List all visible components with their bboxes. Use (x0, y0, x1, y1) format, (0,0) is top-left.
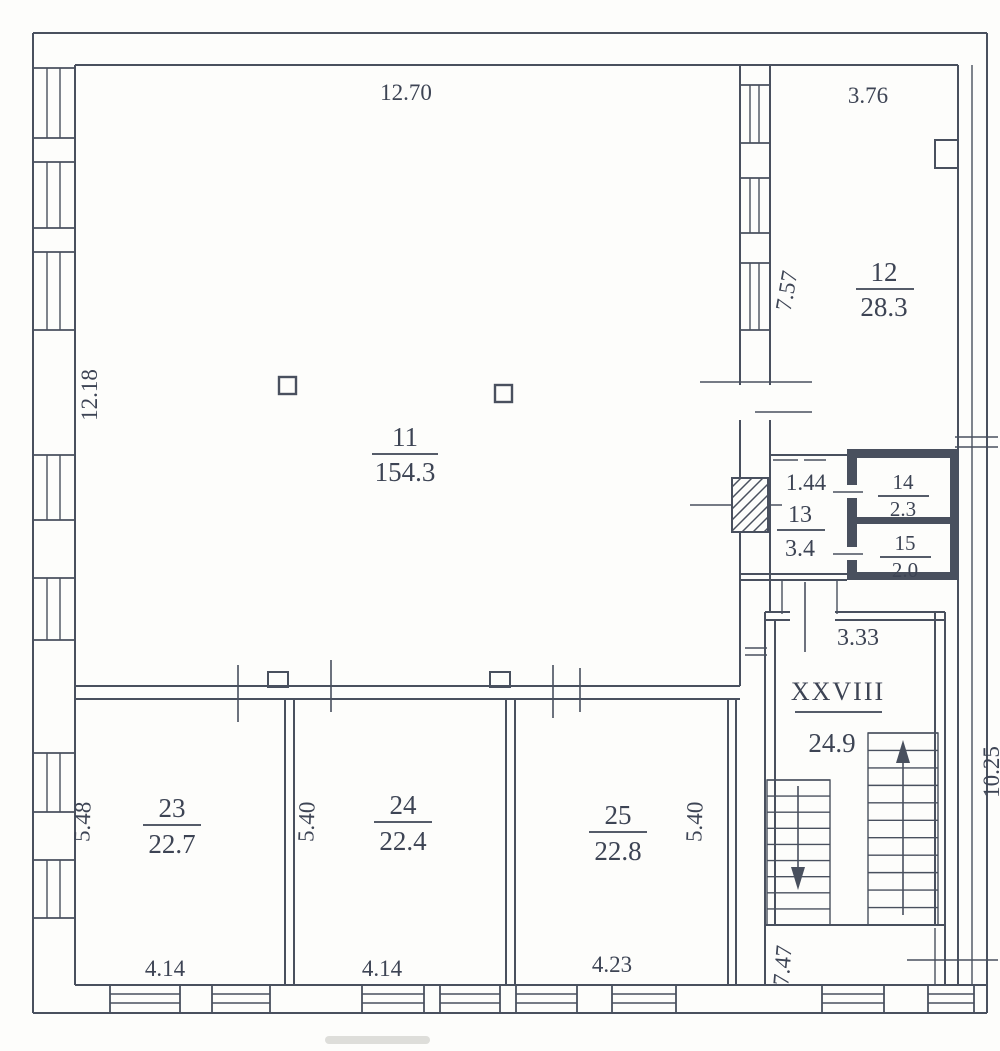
right-wall-niche (935, 140, 958, 168)
stairwell-label: XXVIII 24.9 (791, 677, 885, 758)
column-marker (495, 385, 512, 402)
pilaster-right (490, 672, 510, 687)
room-11-label: 11 154.3 (372, 422, 438, 487)
room-11-area: 154.3 (375, 457, 436, 487)
room-13-label: 13 3.4 (777, 502, 825, 562)
mid-wall-door-ticks (700, 382, 812, 412)
room-14-area: 2.3 (890, 497, 916, 521)
south-wall-door-ticks (238, 660, 580, 722)
dim-room25-height: 5.40 (681, 801, 707, 842)
mid-wall (690, 65, 812, 686)
stair-top-wall (765, 612, 945, 620)
vent-shaft-hatch (732, 478, 768, 532)
wc-top-wall (847, 449, 958, 458)
dim-stair-width: 3.33 (837, 625, 879, 651)
room-25-area: 22.8 (594, 836, 641, 866)
dim-room12-height: 7.57 (771, 269, 803, 313)
stair-down-arrow (791, 786, 805, 890)
dim-room24-height: 5.40 (293, 801, 319, 842)
stair-side-walls (765, 612, 945, 985)
dim-room24-width: 4.14 (362, 956, 403, 981)
dim-top-right-width: 3.76 (848, 83, 888, 108)
dim-stair-lower-height: 7.47 (768, 944, 796, 986)
dim-room23-width: 4.14 (145, 956, 186, 981)
stairwell-area: 24.9 (808, 728, 855, 758)
stairwell-number: XXVIII (791, 677, 885, 706)
room-23-area: 22.7 (148, 829, 195, 859)
room-24-label: 24 22.4 (374, 790, 432, 856)
dim-room13-width: 1.44 (786, 470, 827, 495)
service-rooms-walls (740, 449, 958, 652)
wall-24-25 (506, 699, 515, 985)
pilaster-left (268, 672, 288, 687)
corridor-ticks (745, 648, 767, 655)
dim-right-edge-partial: 10.25 (979, 746, 1000, 798)
room-23-number: 23 (159, 793, 186, 823)
dim-room23-height: 5.48 (69, 801, 95, 842)
room-15-area: 2.0 (892, 558, 918, 582)
mid-wall-lines (740, 65, 770, 686)
room-12-label: 12 28.3 (856, 257, 914, 322)
room-23-label: 23 22.7 (143, 793, 201, 859)
columns (279, 377, 512, 402)
scan-artifact (325, 1036, 430, 1044)
stair-up-arrow (896, 740, 910, 915)
column-marker (279, 377, 296, 394)
windows (33, 68, 974, 1013)
floor-plan-page: 12.70 3.76 12.18 7.57 1.44 3.33 5.48 5.4… (0, 0, 1000, 1051)
room-14-number: 14 (893, 470, 915, 494)
dim-left-height: 12.18 (77, 369, 102, 421)
room-12-area: 28.3 (860, 292, 907, 322)
room-13-number: 13 (788, 502, 812, 528)
room-11-number: 11 (392, 422, 418, 452)
outer-wall-edge (33, 33, 987, 1013)
room-13-area: 3.4 (785, 536, 815, 562)
stairwell-walls (765, 612, 998, 985)
room-25-label: 25 22.8 (589, 800, 647, 866)
stair-treads (767, 733, 938, 925)
room-24-number: 24 (390, 790, 418, 820)
dim-top-width: 12.70 (380, 80, 432, 105)
room-25-number: 25 (605, 800, 632, 830)
room-24-area: 22.4 (379, 826, 427, 856)
room-15-number: 15 (895, 531, 916, 555)
room25-right-wall (728, 699, 736, 985)
right-wall-door-ticks (955, 437, 998, 447)
dim-room25-width: 4.23 (592, 952, 632, 977)
room13-bottom-wall (740, 574, 847, 580)
room-14-label: 14 2.3 (878, 470, 929, 521)
wc-right-wall (950, 449, 958, 580)
floor-plan-drawing: 12.70 3.76 12.18 7.57 1.44 3.33 5.48 5.4… (0, 0, 1000, 1051)
corridor-walls (782, 580, 837, 614)
labels: 12.70 3.76 12.18 7.57 1.44 3.33 5.48 5.4… (69, 80, 1000, 986)
room11-south-wall (75, 686, 740, 699)
room-12-number: 12 (871, 257, 898, 287)
